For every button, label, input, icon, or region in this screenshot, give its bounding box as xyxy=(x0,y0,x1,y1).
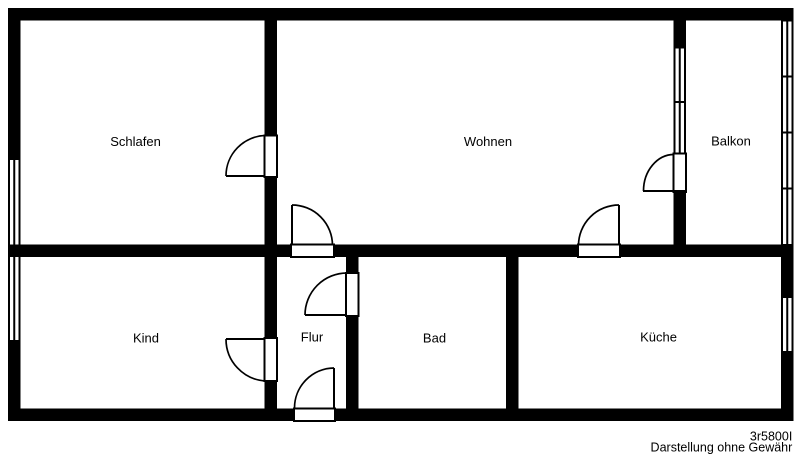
svg-text:Bad: Bad xyxy=(423,331,446,346)
svg-text:Darstellung ohne Gewähr: Darstellung ohne Gewähr xyxy=(651,441,793,455)
svg-text:Schlafen: Schlafen xyxy=(110,134,161,149)
svg-text:Wohnen: Wohnen xyxy=(464,134,512,149)
svg-text:Balkon: Balkon xyxy=(711,134,751,149)
svg-text:Kind: Kind xyxy=(133,331,159,346)
svg-text:Küche: Küche xyxy=(640,330,677,345)
svg-text:Flur: Flur xyxy=(301,330,324,345)
